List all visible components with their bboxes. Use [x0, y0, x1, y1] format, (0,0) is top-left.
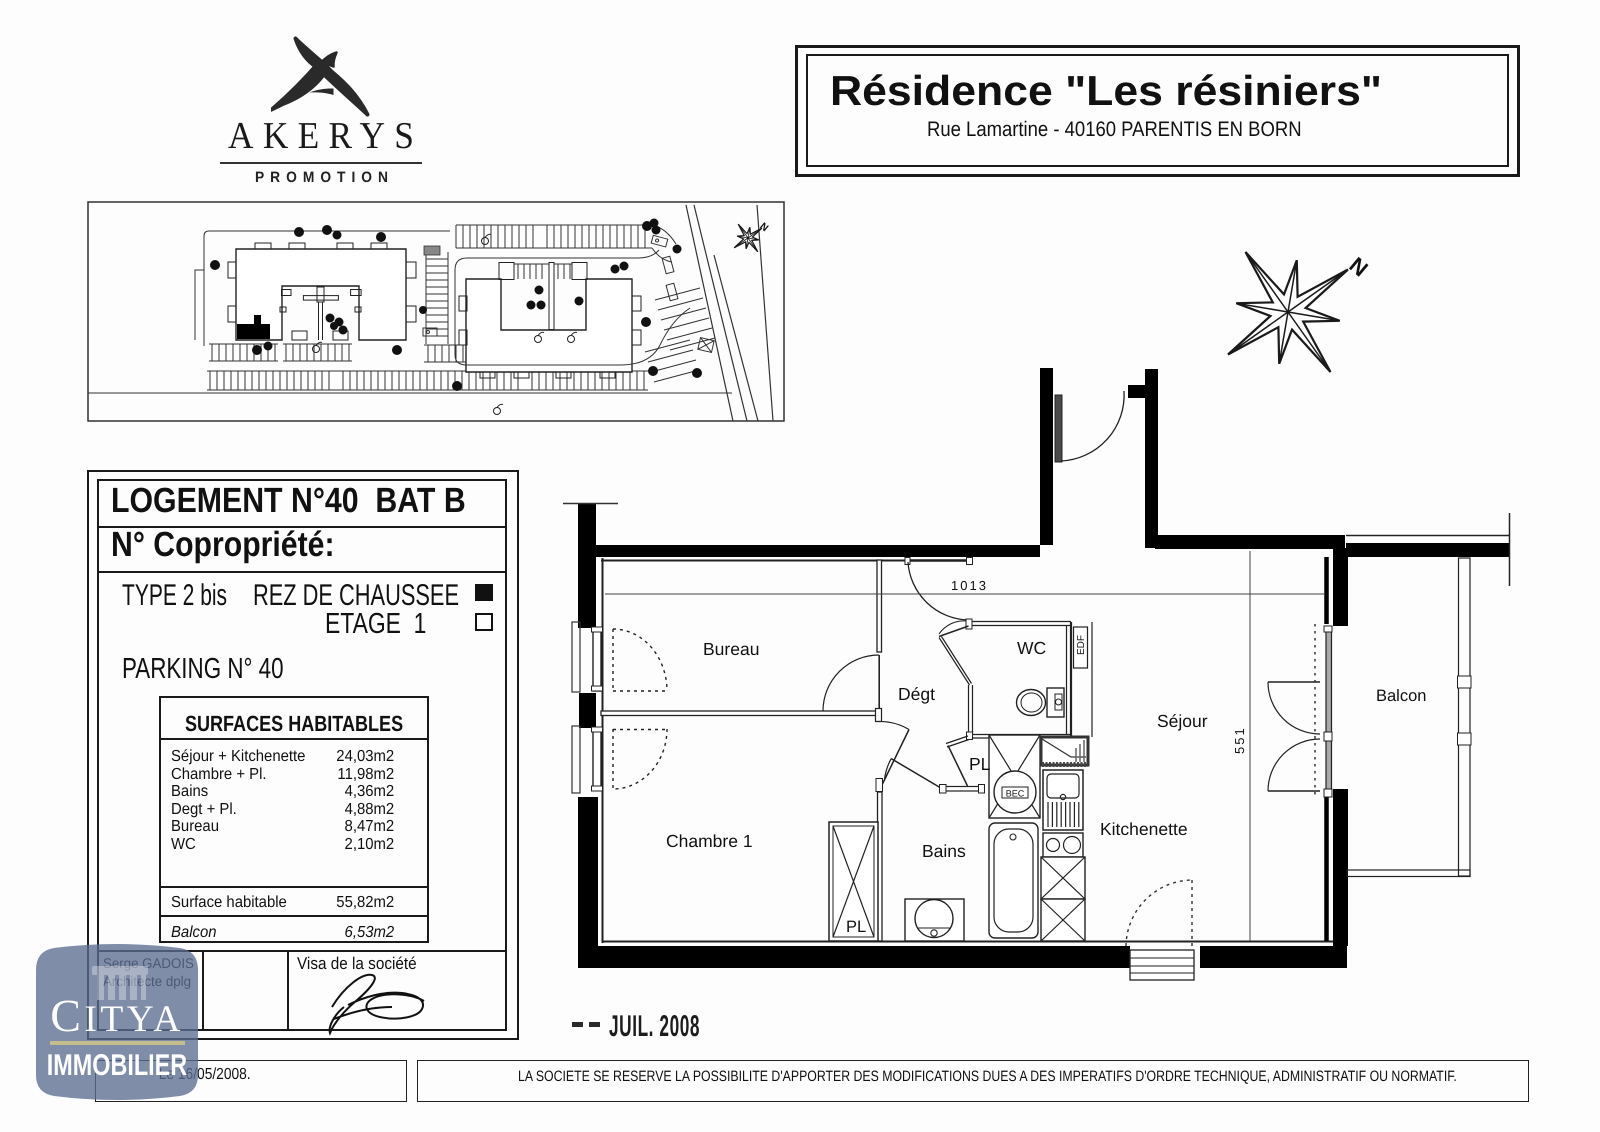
svg-text:Kitchenette: Kitchenette — [1100, 819, 1188, 839]
svg-text:Bains: Bains — [922, 841, 966, 861]
svg-text:BEC: BEC — [1006, 789, 1025, 799]
svg-text:PL: PL — [969, 754, 991, 774]
svg-text:Bureau: Bureau — [703, 639, 759, 659]
svg-text:Séjour: Séjour — [1157, 711, 1208, 731]
svg-text:Dégt: Dégt — [898, 684, 935, 704]
svg-text:Balcon: Balcon — [1376, 687, 1426, 705]
svg-text:WC: WC — [1017, 638, 1046, 658]
svg-text:N: N — [1345, 252, 1373, 281]
svg-text:Chambre 1: Chambre 1 — [666, 831, 753, 851]
svg-text:1013: 1013 — [951, 578, 988, 593]
svg-text:PL: PL — [846, 918, 866, 936]
svg-text:551: 551 — [1232, 726, 1247, 754]
svg-text:IMMOBILIER: IMMOBILIER — [47, 1049, 188, 1082]
svg-text:EDF: EDF — [1076, 635, 1087, 655]
